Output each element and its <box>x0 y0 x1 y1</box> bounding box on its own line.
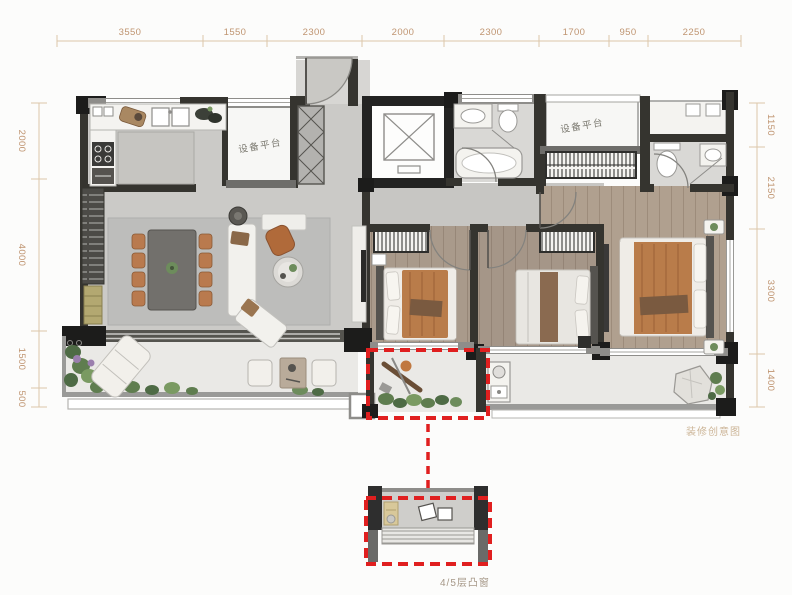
coffee-table-icon <box>273 257 303 287</box>
dining-table-icon <box>148 230 196 310</box>
dim-left-1: 2000 <box>16 130 27 153</box>
dim-top-8: 2250 <box>683 27 706 38</box>
kitchen-island <box>118 132 194 184</box>
book-icon <box>419 503 437 520</box>
bookshelf-icon <box>82 188 104 324</box>
floor-plan-canvas <box>0 0 792 595</box>
toilet-icon <box>498 104 518 132</box>
dim-top-3: 2300 <box>303 27 326 38</box>
dim-top-7: 950 <box>619 27 636 38</box>
stove-icon <box>92 142 114 184</box>
tv-console-icon <box>352 226 366 322</box>
dim-right-2: 2150 <box>765 177 776 200</box>
nightstand-icon <box>372 254 386 265</box>
dim-top-4: 2000 <box>392 27 415 38</box>
bedroom2-closet <box>540 230 594 252</box>
tv-icon <box>604 244 609 332</box>
bed-icon <box>516 266 598 344</box>
book-icon <box>438 508 452 520</box>
bedroom-2 <box>516 266 598 348</box>
balcony-railing <box>68 399 354 409</box>
master-bedroom <box>604 220 724 354</box>
dim-top-6: 1700 <box>563 27 586 38</box>
bathtub-icon <box>456 148 522 178</box>
dim-right-4: 1400 <box>765 369 776 392</box>
bed-icon <box>620 236 714 338</box>
bed-icon <box>376 266 456 340</box>
dim-left-3: 1500 <box>16 348 27 371</box>
dim-top-5: 2300 <box>480 27 503 38</box>
dim-left-4: 500 <box>16 390 27 407</box>
bedroom1-closet <box>374 230 428 252</box>
dim-right-1: 1150 <box>765 114 776 136</box>
nightstand-icon <box>704 340 724 354</box>
outdoor-seat-icon <box>312 360 336 386</box>
dim-right-3: 3300 <box>765 280 776 303</box>
watermark: 装修创意图 <box>686 423 741 438</box>
outdoor-seat-icon <box>248 360 272 386</box>
side-table-icon <box>578 336 591 348</box>
washer-icon <box>488 362 510 402</box>
dim-left-2: 4000 <box>16 244 27 267</box>
dim-top-1: 3550 <box>119 27 142 38</box>
outdoor-table-icon <box>280 358 306 388</box>
nightstand-icon <box>704 220 724 234</box>
bay-window-note: 4/5层凸窗 <box>440 574 490 589</box>
side-table-icon <box>229 207 247 225</box>
elevator-shaft <box>372 106 444 178</box>
hatched-cabinet <box>298 106 324 184</box>
floorplan-image: 3550 1550 2300 2000 2300 1700 950 2250 2… <box>0 0 792 595</box>
dim-top-2: 1550 <box>224 27 247 38</box>
